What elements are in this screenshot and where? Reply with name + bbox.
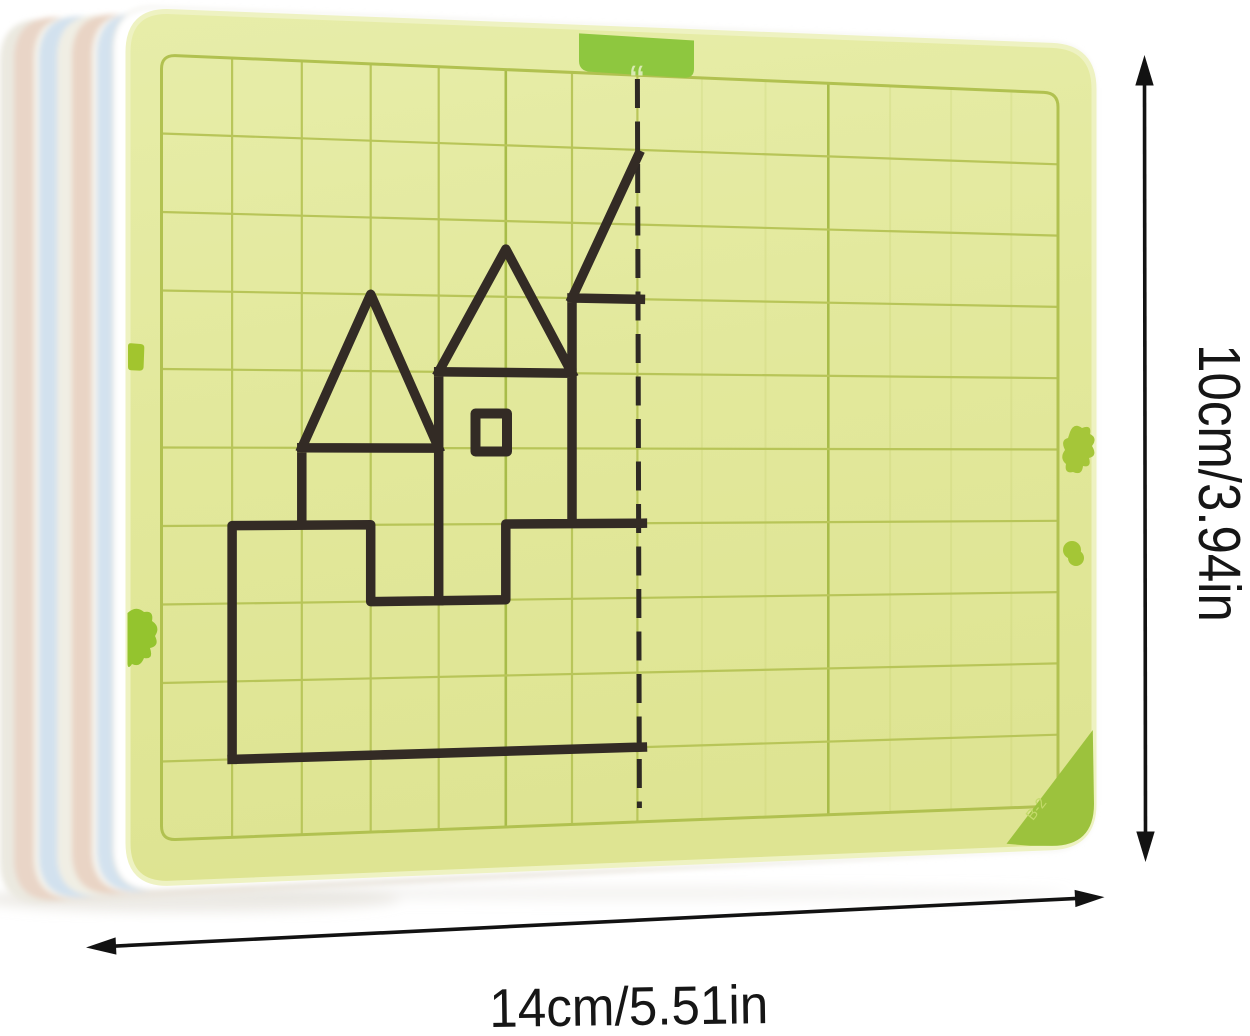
- svg-text:14cm/5.51in: 14cm/5.51in: [489, 975, 769, 1031]
- svg-text:“: “: [630, 57, 645, 106]
- svg-text:10cm/3.94in: 10cm/3.94in: [1186, 344, 1250, 622]
